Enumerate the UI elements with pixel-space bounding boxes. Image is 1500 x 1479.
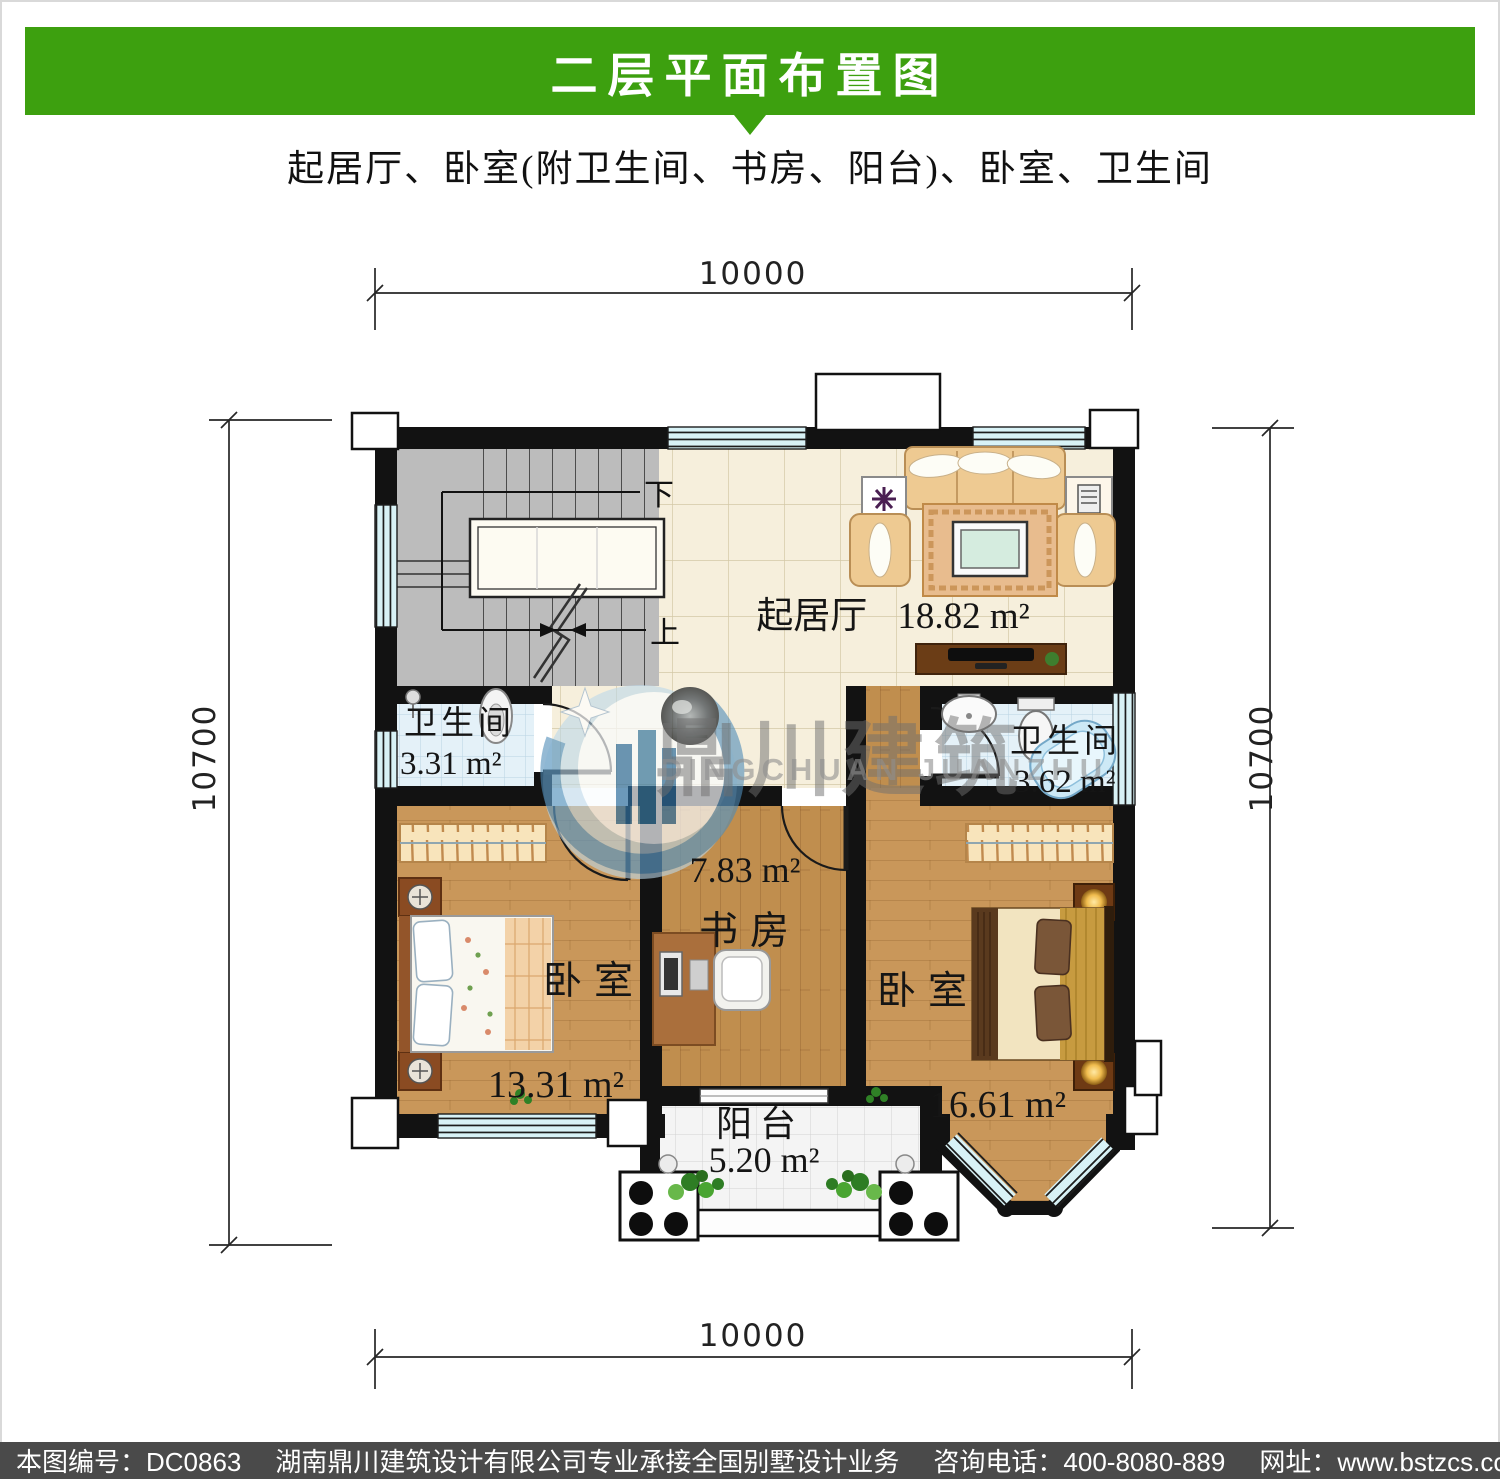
floor-plan: 鼎川建筑 DINGCHUAN JUANZHU 10000 10000 10700… — [0, 0, 1500, 1479]
side-ledge — [1135, 1041, 1161, 1095]
corner-trim-tr — [1090, 410, 1138, 448]
footer-website: 网址：www.bstzcs.com — [1259, 1442, 1500, 1479]
room-label-study: 书房 — [699, 912, 801, 951]
dim-top: 10000 — [699, 256, 808, 292]
corner-trim-tl — [352, 413, 398, 449]
footer-phone: 咨询电话：400-8080-889 — [933, 1442, 1225, 1479]
plant-small — [1045, 652, 1059, 666]
lamp — [1081, 1059, 1107, 1085]
area-label-study: 7.83 m² — [690, 852, 801, 888]
pillow — [1035, 919, 1072, 975]
floor-plan-page: 二层平面布置图 起居厅、卧室(附卫生间、书房、阳台)、卧室、卫生间 — [0, 0, 1500, 1479]
dim-left: 10700 — [187, 704, 223, 813]
pillow — [1035, 985, 1072, 1041]
area-label-bath-left: 3.31 m² — [400, 748, 502, 781]
living-name: 起居厅 — [756, 596, 867, 637]
dim-bottom: 10000 — [699, 1318, 808, 1354]
room-label-bedroom-right: 卧室 — [877, 972, 979, 1011]
window-bedroom-left — [438, 1114, 596, 1138]
area-label-balcony: 5.20 m² — [709, 1142, 820, 1178]
room-label-living: 起居厅18.82 m² — [756, 598, 1029, 635]
dim-right: 10700 — [1244, 704, 1280, 813]
stairs-down-label: 下 — [644, 470, 674, 514]
bed-headboard — [399, 916, 411, 1052]
staircase — [397, 449, 664, 686]
roof-bumpout — [816, 374, 940, 430]
area-label-bath-right: 3.62 m² — [1014, 766, 1116, 799]
stairs-up-label: 上 — [650, 608, 680, 652]
window-left-2 — [375, 731, 397, 788]
bed-headboard — [1104, 906, 1114, 1062]
living-area: 18.82 m² — [897, 596, 1029, 637]
room-label-bath-left: 卫生间 — [404, 708, 515, 741]
tv — [948, 648, 1034, 661]
window-top-1 — [668, 427, 806, 449]
flower-pot — [659, 1155, 677, 1173]
footer-bar: 本图编号：DC0863 湖南鼎川建筑设计有限公司专业承接全国别墅设计业务 咨询电… — [0, 1442, 1500, 1479]
corner-trim-bl — [352, 1098, 398, 1148]
room-label-bedroom-left: 卧室 — [543, 962, 645, 1001]
corner-trim-balcony — [608, 1100, 648, 1146]
flower-pot — [896, 1155, 914, 1173]
window-left-1 — [375, 505, 397, 627]
area-label-bedroom-right: 16.61 m² — [930, 1086, 1066, 1124]
room-label-balcony: 阳台 — [716, 1106, 804, 1142]
footer-drawing-no: 本图编号：DC0863 — [16, 1442, 241, 1479]
area-label-bedroom-left: 13.31 m² — [488, 1066, 624, 1104]
pillow — [413, 984, 453, 1046]
shower-head — [406, 690, 420, 704]
footer-company: 湖南鼎川建筑设计有限公司专业承接全国别墅设计业务 — [275, 1442, 899, 1479]
room-label-bath-right: 卫生间 — [1010, 726, 1121, 759]
window-top-2 — [973, 427, 1085, 449]
pillow — [413, 920, 453, 982]
